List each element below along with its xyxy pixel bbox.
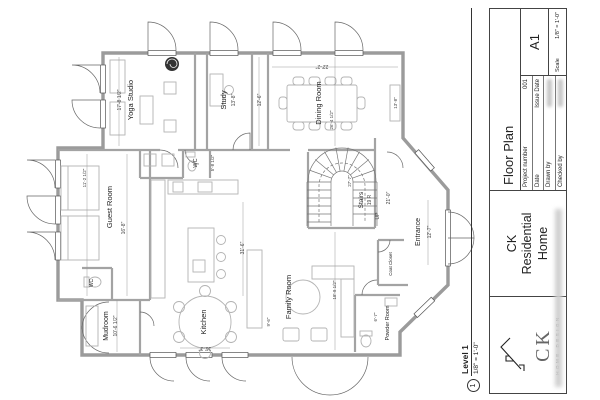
room-label-family: Family Room xyxy=(284,275,293,319)
project-name-line-3: Home xyxy=(536,227,552,260)
dim-mudroom: 10'-6 1/2" xyxy=(113,315,119,336)
field-checked-by-label: Checked by xyxy=(558,155,564,187)
view-number-badge: 1 xyxy=(467,379,480,392)
field-drawn-by: Drawn by xyxy=(544,76,556,190)
dim-hall: 26'-4 1/2" xyxy=(329,110,334,129)
dim-guest: 16'-8" xyxy=(121,221,127,234)
project-name-line-1: CK xyxy=(505,235,521,252)
view-title-scale: 1/8" = 1'-0" xyxy=(472,8,480,376)
dim-sideboard: 13'-8" xyxy=(393,97,398,109)
room-label-guest: Guest Room xyxy=(105,186,114,228)
sheet-number: A1 xyxy=(521,9,548,75)
room-label-entrance: Entrance xyxy=(415,218,422,246)
room-label-yoga-studio: Yoga Studio xyxy=(126,80,135,120)
title-block: CK HOME DESIGN CK Residential Home Floor… xyxy=(489,8,567,394)
dim-kitchen: 16'-3" xyxy=(198,345,211,351)
dim-dining-w: 22'-2" xyxy=(315,63,328,69)
project-name-line-2: Residential xyxy=(520,213,536,275)
room-label-dining: Dining Room xyxy=(314,81,323,124)
contact-info-redacted xyxy=(555,209,562,387)
field-date-value: Issue Date xyxy=(535,79,541,108)
room-label-wc2: WC xyxy=(89,278,95,287)
dim-kitchen-l: 31'-6" xyxy=(240,241,246,254)
room-label-coat-closet: Coat Closet xyxy=(388,251,393,275)
dim-stairs-up: UP xyxy=(375,212,381,220)
logo-initials: CK xyxy=(533,328,553,362)
dim-wc1: 5'-8 1/2" xyxy=(210,154,215,171)
field-date: Date Issue Date xyxy=(533,76,545,190)
room-label-mudroom: Mudroom xyxy=(103,311,110,341)
dim-dining-d: 12'-6" xyxy=(257,93,263,106)
sheet-name: Floor Plan xyxy=(490,9,520,190)
dim-powder: 6'-7" xyxy=(373,312,378,321)
dim-guest-w: 11'-2 1/2" xyxy=(82,168,87,187)
sheet-scale: Scale 1/8" = 1'-0" xyxy=(548,9,566,75)
view-title-name: Level 1 xyxy=(458,8,471,376)
dim-stairs-w: 27'-7" xyxy=(347,175,352,187)
room-label-study: Study xyxy=(219,90,228,109)
field-project-number: Project number 001 xyxy=(521,76,533,190)
field-drawn-by-label: Drawn by xyxy=(546,162,552,187)
view-title: 1 Level 1 1/8" = 1'-0" xyxy=(458,8,485,392)
sheet-info-section: Floor Plan Project number 001 Date Issue… xyxy=(490,9,566,191)
drawing-sheet: Yoga Studio Study Dining Room Guest Room… xyxy=(0,0,600,400)
dim-stairs-run: 21'-0" xyxy=(386,191,392,204)
field-checked-by-value-redacted xyxy=(558,79,563,107)
field-date-label: Date xyxy=(535,174,541,187)
door-swing-arcs xyxy=(27,22,474,395)
sheet-scale-value: 1/8" = 1'-0" xyxy=(555,12,561,39)
dim-entrance: 12'-7" xyxy=(427,225,433,238)
field-checked-by: Checked by xyxy=(556,76,567,190)
dim-stairs-risers: 19 R xyxy=(367,194,373,205)
stairs-treads xyxy=(307,148,377,227)
room-label-kitchen: Kitchen xyxy=(199,309,208,334)
field-project-number-value: 001 xyxy=(523,79,529,89)
dim-study: 13'-8" xyxy=(231,93,237,106)
dim-family-w: 9'-6" xyxy=(266,317,271,326)
room-label-stairs: Stairs xyxy=(358,191,365,208)
room-label-powder: Powder Room xyxy=(385,305,391,340)
ck-home-design-logo-icon xyxy=(497,316,527,374)
dim-family: 18'-9 1/2" xyxy=(332,280,337,299)
field-drawn-by-value-redacted xyxy=(547,79,552,107)
dim-yoga: 17'-8 1/2" xyxy=(117,89,123,110)
sheet-scale-label: Scale xyxy=(555,58,561,72)
room-label-wc1: WC xyxy=(193,158,199,167)
field-project-number-label: Project number xyxy=(523,146,529,187)
